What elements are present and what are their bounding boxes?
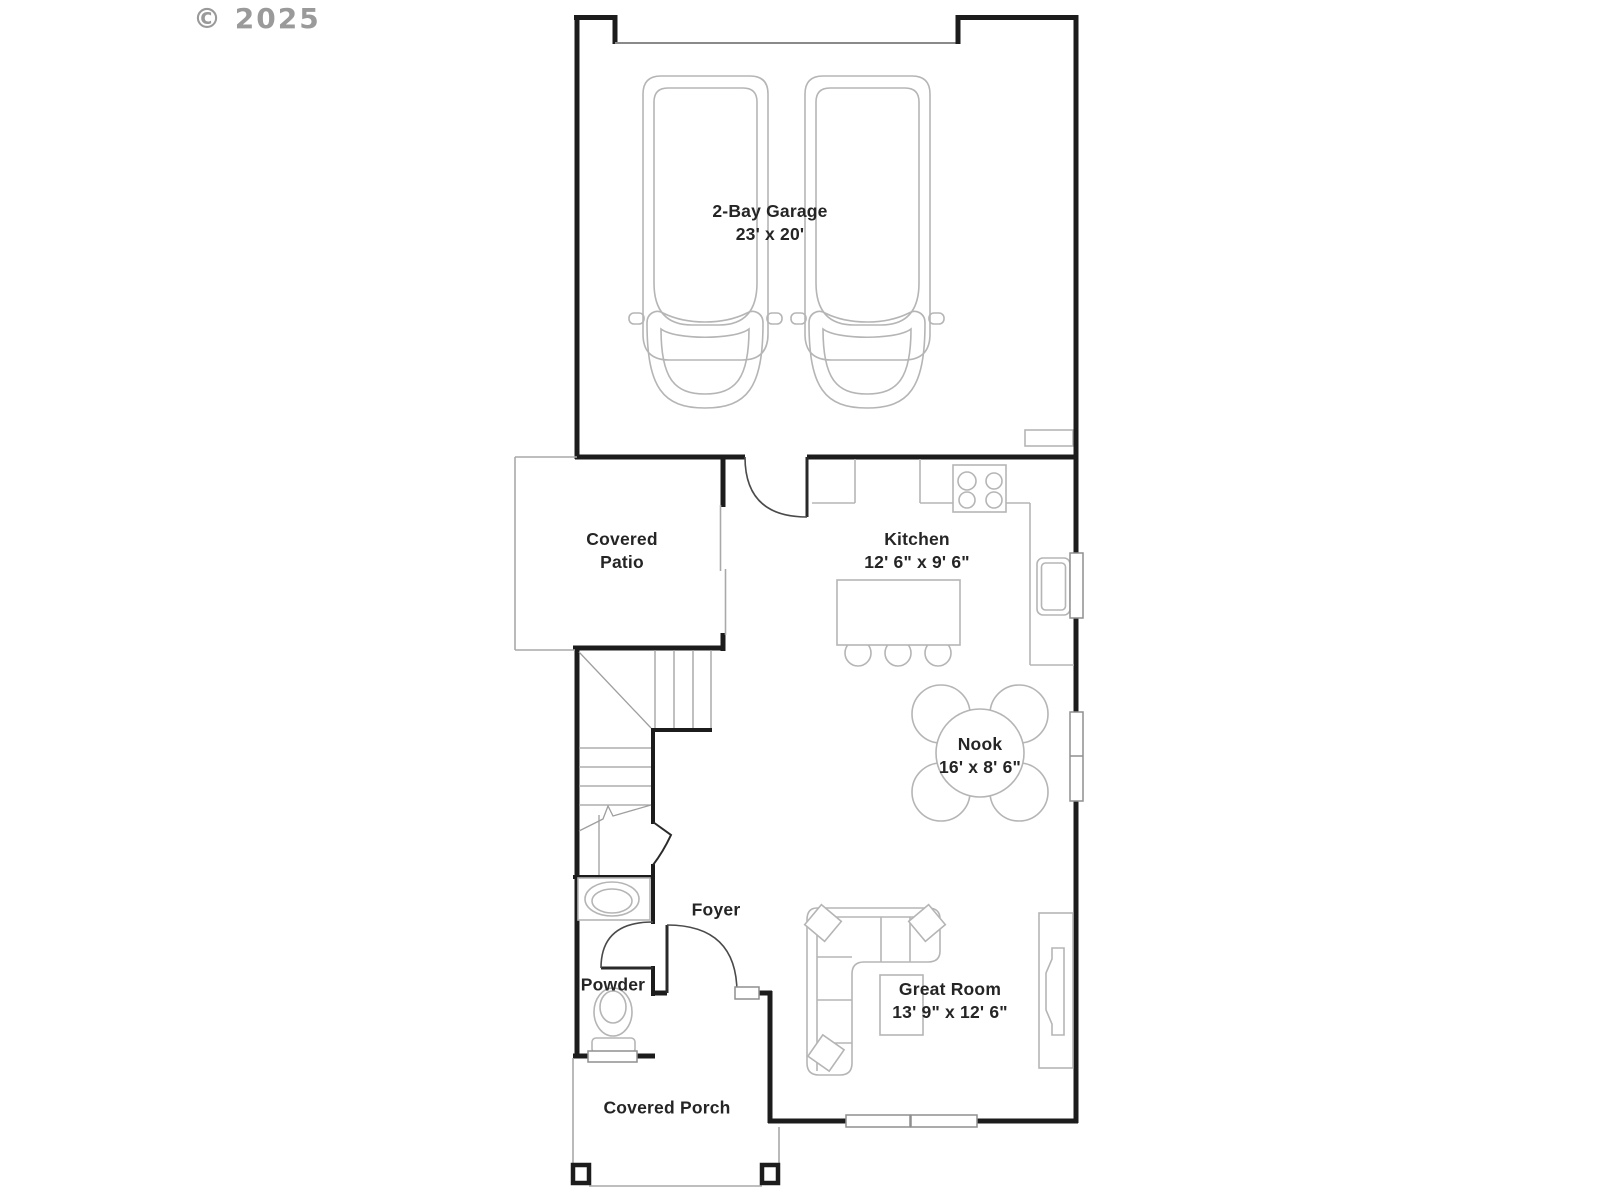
room-name: Great Room bbox=[892, 978, 1008, 1001]
room-label-great-room: Great Room 13' 9" x 12' 6" bbox=[892, 978, 1008, 1024]
sliding-glass-door-icon bbox=[721, 505, 726, 635]
toilet-icon bbox=[592, 988, 635, 1053]
porch-outline bbox=[573, 1058, 779, 1186]
room-label-foyer: Foyer bbox=[692, 899, 741, 922]
floor-plan-drawing bbox=[0, 0, 1600, 1200]
room-dimensions: 13' 9" x 12' 6" bbox=[892, 1001, 1008, 1024]
powder-door-icon bbox=[601, 922, 653, 968]
room-name: Covered Patio bbox=[566, 528, 678, 574]
garage-entry-door-icon bbox=[745, 457, 807, 517]
room-label-kitchen: Kitchen 12' 6" x 9' 6" bbox=[864, 528, 970, 574]
door-threshold bbox=[735, 987, 759, 999]
range-stove-icon bbox=[953, 465, 1006, 512]
floor-plan-page: { "watermark": { "text": "© 2025" }, "pl… bbox=[0, 0, 1600, 1200]
room-label-covered-porch: Covered Porch bbox=[603, 1097, 730, 1120]
room-label-powder: Powder bbox=[581, 974, 645, 997]
front-door-icon bbox=[667, 925, 759, 999]
kitchen-sink-icon bbox=[1037, 558, 1070, 615]
garage-shelf-icon bbox=[1025, 430, 1073, 446]
room-dimensions: 12' 6" x 9' 6" bbox=[864, 551, 970, 574]
porch-post-icon bbox=[762, 1165, 778, 1183]
room-name: Powder bbox=[581, 974, 645, 997]
kitchen-island-icon bbox=[837, 580, 960, 645]
room-name: Foyer bbox=[692, 899, 741, 922]
porch-post-icon bbox=[573, 1165, 589, 1183]
room-name: Covered Porch bbox=[603, 1097, 730, 1120]
room-label-covered-patio: Covered Patio bbox=[566, 528, 678, 574]
room-name: Kitchen bbox=[864, 528, 970, 551]
stairs-icon bbox=[579, 650, 711, 875]
copyright-watermark: © 2025 bbox=[193, 2, 321, 35]
room-dimensions: 16' x 8' 6" bbox=[939, 756, 1021, 779]
room-label-garage: 2-Bay Garage 23' x 20' bbox=[712, 200, 827, 246]
room-name: Nook bbox=[939, 733, 1021, 756]
tv-console-icon bbox=[1039, 913, 1073, 1068]
room-label-nook: Nook 16' x 8' 6" bbox=[939, 733, 1021, 779]
vanity-sink-icon bbox=[578, 878, 650, 920]
stair-hall-door-icon bbox=[653, 822, 671, 865]
room-name: 2-Bay Garage bbox=[712, 200, 827, 223]
room-dimensions: 23' x 20' bbox=[712, 223, 827, 246]
